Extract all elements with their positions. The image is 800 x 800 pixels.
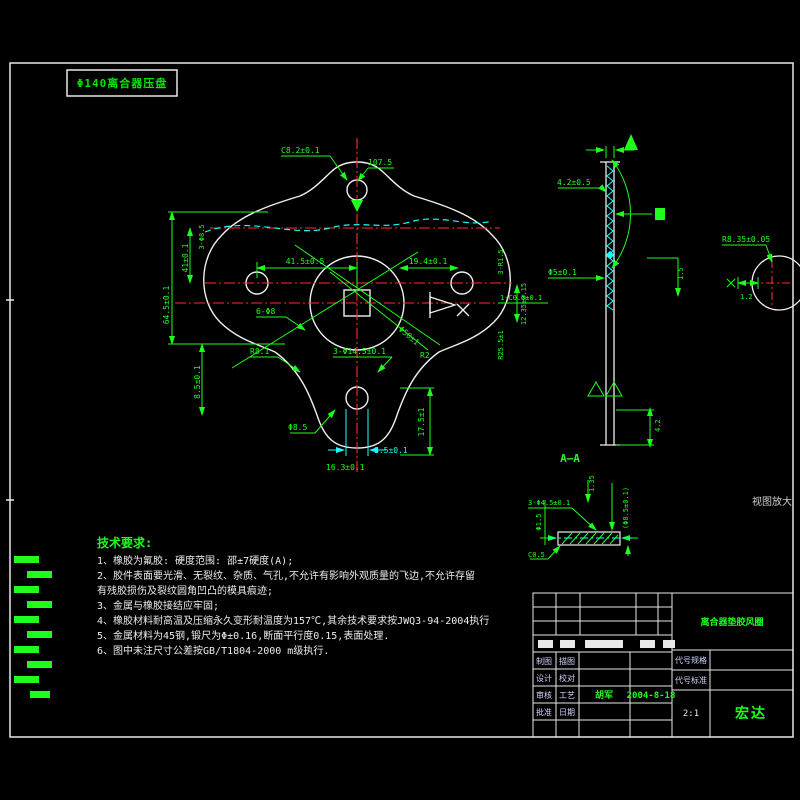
dim-right-r2: R25.5±1 xyxy=(497,330,505,360)
tb-signature: 胡军 xyxy=(595,689,613,701)
sheet-title: Φ140离合器压盘 xyxy=(77,76,168,90)
tech-req-title: 技术要求: xyxy=(97,534,477,551)
dim-aa-holes: 3-Φ4.5±0.1 xyxy=(528,499,570,507)
tb-part-name: 离合器垫胶风圈 xyxy=(700,616,763,628)
revision-blocks xyxy=(14,556,52,698)
tech-req-line: 有残胶损伤及裂纹圆角凹凸的模具痕迹; xyxy=(97,584,477,599)
dim-bottom-r2: R2 xyxy=(420,351,430,360)
tb-company: 宏达 xyxy=(735,705,767,722)
dim-aa-t: 1.35 xyxy=(588,475,596,492)
dim-bottom-holes: 3-Φ14.5±0.1 xyxy=(333,347,386,356)
technical-requirements: 技术要求: 1、橡胶为氟胶: 硬度范围: 邵±7硬度(A); 2、胶件表面要光滑… xyxy=(97,534,477,659)
tech-req-line: 1、橡胶为氟胶: 硬度范围: 邵±7硬度(A); xyxy=(97,554,477,569)
tb-row1-label2: 校对 xyxy=(559,673,575,683)
section-view: 4.2±0.5 Φ5±0.1 1.5 4.2 xyxy=(548,134,685,447)
tech-req-line: 4、橡胶材料耐高温及压缩永久变形耐温度为157℃,其余技术要求按JWQ3-94-… xyxy=(97,614,477,629)
dim-left-inner: 41±0.1 xyxy=(181,243,190,272)
tb-row2-label: 审核 xyxy=(536,690,552,700)
dim-section-top: 4.2±0.5 xyxy=(557,178,591,187)
section-label: A—A xyxy=(560,452,580,465)
surface-finish-icon xyxy=(624,134,638,150)
dim-left-lower: 8.5±0.1 xyxy=(193,365,202,399)
dim-bottom-r: R8.1 xyxy=(250,347,269,356)
tb-date: 2004-8-18 xyxy=(627,691,676,701)
dim-center-dia: Φ50±1 xyxy=(397,325,421,347)
dim-mid-right: 19.4±0.1 xyxy=(409,257,448,266)
dim-bottom-low: 16.3±0.1 xyxy=(326,463,365,472)
cyan-node xyxy=(606,251,614,259)
dim-right-offset: 12.35±0.15 xyxy=(520,283,528,325)
dim-top-chamfer: C8.2±0.1 xyxy=(281,146,320,155)
dim-aa-dia: (Φ8.5±0.1) xyxy=(622,487,630,529)
tb-row0-label: 制图 xyxy=(536,656,552,666)
drawing-sheet: Φ140离合器压盘 xyxy=(0,0,800,800)
checkbox-row xyxy=(538,640,675,648)
dim-section-corner: 1.5 xyxy=(677,267,685,280)
aa-section: A—A 3-Φ4.5±0.1 1.35 (Φ8.5±0.1) Φ1.5 C0.5 xyxy=(528,452,638,559)
tb-spec2: 代号标准 xyxy=(675,675,707,685)
tech-req-line: 5、金属材料为45钢,锻尺为Φ±0.16,断面平行度0.15,表面处理. xyxy=(97,629,477,644)
tb-row1-label: 设计 xyxy=(536,673,552,683)
title-block: 制图 描图 设计 校对 审核 工艺 批准 日期 胡军 2004-8-18 离合器… xyxy=(533,593,793,737)
dim-section-mid: Φ5±0.1 xyxy=(548,268,577,277)
view-direction-arrow xyxy=(430,292,469,318)
tech-req-line: 3、金属与橡胶接结应牢固; xyxy=(97,599,477,614)
tech-req-line: 2、胶件表面要光滑、无裂纹、杂质、气孔,不允许有影响外观质量的飞边,不允许存留 xyxy=(97,569,477,584)
dim-right-r: 3-R1.5 xyxy=(497,249,505,274)
rubber-hatch xyxy=(607,166,613,310)
dim-top-height: 107.5 xyxy=(368,158,392,167)
tb-row3-label2: 日期 xyxy=(559,708,575,717)
tb-row2-label2: 工艺 xyxy=(559,691,575,700)
dim-mid-left: 41.5±0.5 xyxy=(286,257,325,266)
dim-section-thickness: 4.2 xyxy=(654,419,662,432)
dim-aa-chamfer: C0.5 xyxy=(528,551,545,559)
dim-bottom-dia: Φ8.5 xyxy=(288,423,307,432)
tb-row3-label: 批准 xyxy=(536,707,552,717)
view-note: 视图放大 xyxy=(752,495,792,508)
gauge-block-symbol xyxy=(655,208,665,220)
dim-bottom-height: 17.5±1 xyxy=(417,407,426,436)
dim-aa-left: Φ1.5 xyxy=(535,514,543,531)
dim-left-outer: 64.5±0.1 xyxy=(162,286,171,325)
tb-row0-label2: 描图 xyxy=(559,656,575,666)
header-box: Φ140离合器压盘 xyxy=(67,70,177,96)
cad-viewport: Φ140离合器压盘 xyxy=(0,0,800,800)
dim-holes: 6-Φ8 xyxy=(256,307,275,316)
tb-spec1: 代号规格 xyxy=(675,655,707,665)
dim-detail-r: R8.35±0.05 xyxy=(722,235,770,244)
rubber-profile xyxy=(205,219,492,232)
centerlines xyxy=(175,138,522,472)
dim-detail-w: 1.2 xyxy=(740,293,753,301)
tb-scale: 2:1 xyxy=(683,709,699,719)
datum-target-symbol xyxy=(351,200,363,212)
right-detail-view: R8.35±0.05 1.2 xyxy=(722,235,800,310)
dim-bottom-cyan: 8.5±0.1 xyxy=(374,446,408,455)
tech-req-line: 6、图中未注尺寸公差按GB/T1804-2000 m级执行. xyxy=(97,644,477,659)
dim-left-top: 3-Φ8.5 xyxy=(198,224,206,249)
